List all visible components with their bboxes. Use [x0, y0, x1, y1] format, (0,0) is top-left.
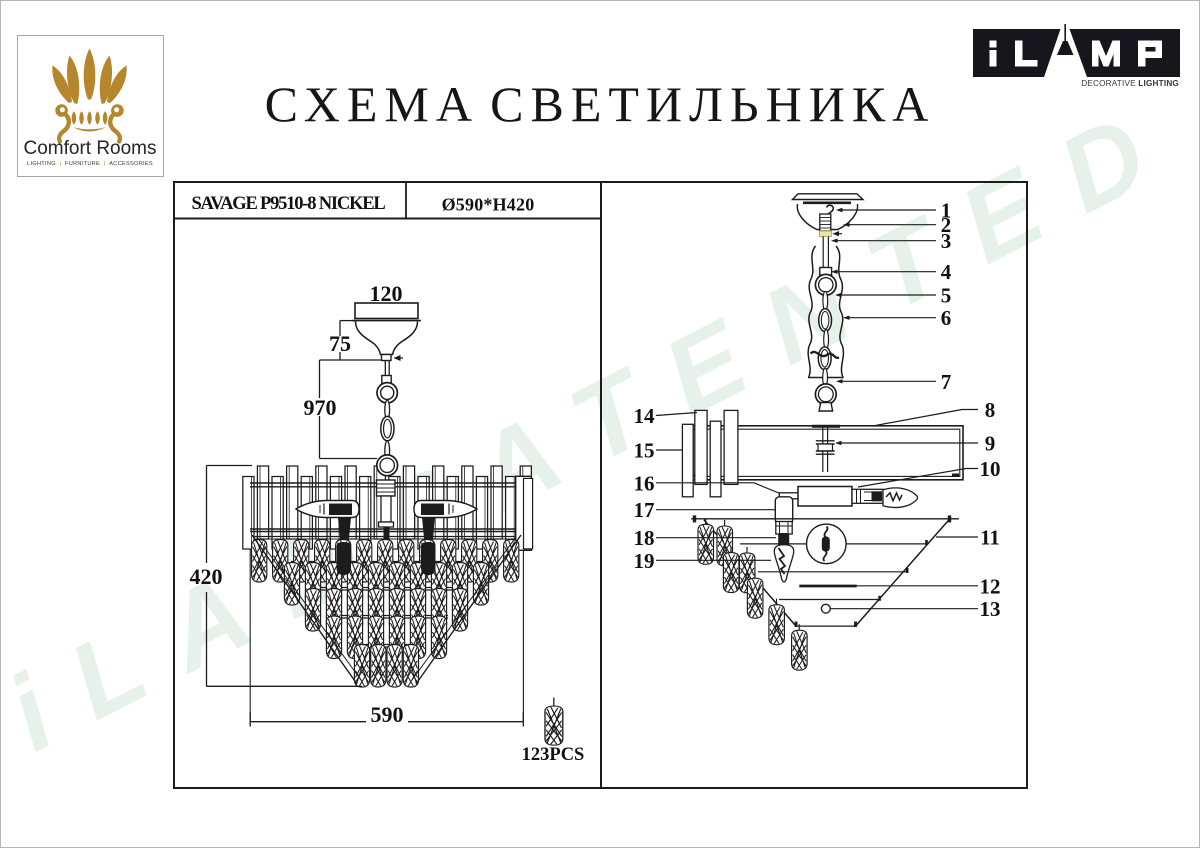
svg-text:18: 18	[634, 526, 655, 550]
svg-text:75: 75	[329, 331, 351, 356]
svg-text:5: 5	[941, 284, 952, 308]
svg-text:3: 3	[941, 229, 952, 253]
svg-text:4: 4	[941, 260, 952, 284]
svg-text:123PCS: 123PCS	[522, 745, 585, 765]
svg-text:10: 10	[980, 457, 1001, 481]
svg-text:6: 6	[941, 306, 952, 330]
svg-text:Ø590*H420: Ø590*H420	[442, 195, 535, 215]
svg-text:17: 17	[634, 498, 655, 522]
svg-text:19: 19	[634, 549, 655, 573]
svg-text:8: 8	[985, 398, 996, 422]
svg-text:13: 13	[980, 597, 1001, 621]
svg-text:15: 15	[634, 439, 655, 463]
svg-text:9: 9	[985, 432, 996, 456]
svg-text:590: 590	[371, 702, 404, 727]
svg-text:420: 420	[190, 564, 223, 589]
svg-text:SAVAGE P9510-8 NICKEL: SAVAGE P9510-8 NICKEL	[191, 194, 385, 214]
svg-text:7: 7	[941, 370, 952, 394]
svg-text:11: 11	[980, 526, 1000, 550]
svg-text:16: 16	[634, 472, 655, 496]
svg-text:12: 12	[980, 574, 1001, 598]
svg-text:14: 14	[634, 404, 656, 428]
svg-text:970: 970	[304, 395, 337, 420]
